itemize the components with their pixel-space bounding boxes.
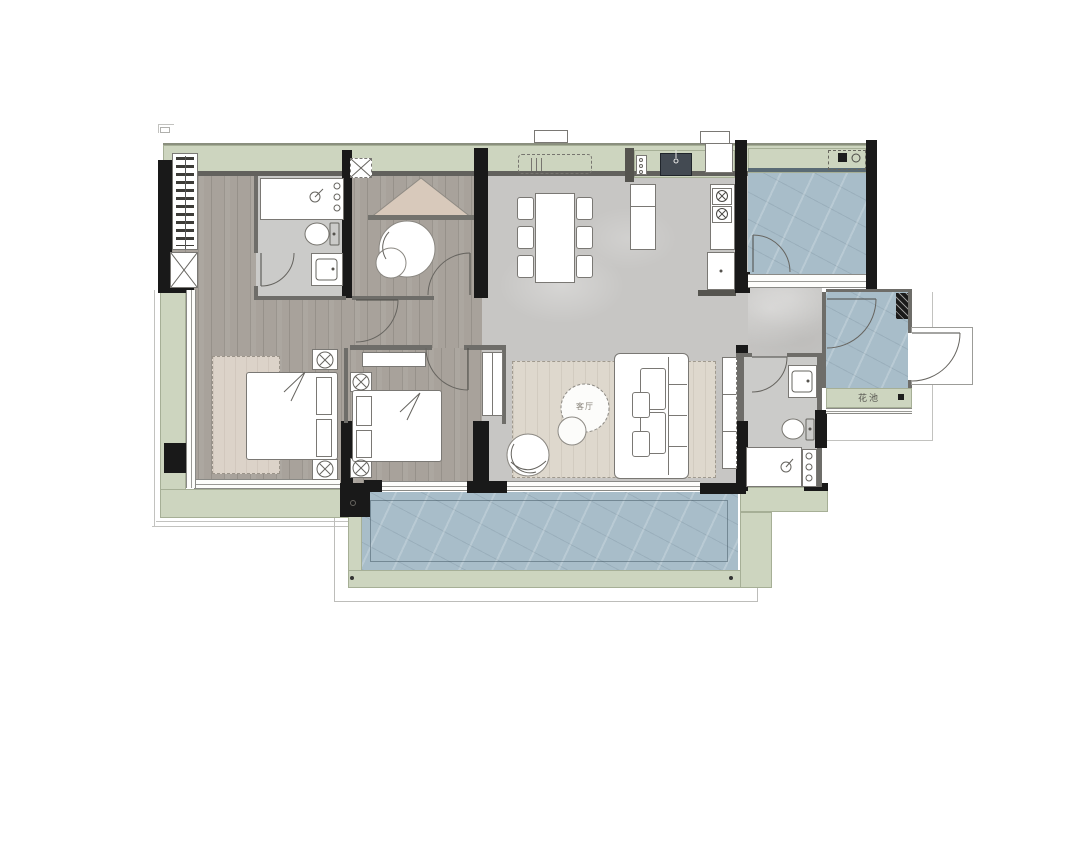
guest-bathroom-door [752,357,787,392]
plan-symbol-overlay [0,0,1080,866]
living-room-label: 客厅 [570,401,600,413]
stove-burner-icon [717,191,728,202]
play-tent [368,178,474,220]
master-hall-door [356,300,398,342]
table-lamp-icon [353,460,369,476]
shower-knobs [334,183,340,211]
table-lamp-icon [353,374,369,390]
round-chair [376,221,435,278]
shaft-x-icon [171,253,197,287]
study-door [428,253,470,295]
balcony-dot [351,501,356,506]
porch-interior-door [827,299,876,348]
master-bathroom-door [261,253,294,286]
table-lamp-icon [317,461,333,477]
stove-burner-icon [717,209,728,220]
flower-bed-dot [898,394,904,400]
balcony-dot [729,576,733,580]
duvet-fold [400,393,420,420]
bedroom2-door [426,348,468,390]
shower-head-icon [310,189,323,202]
appliance-dots [640,159,643,174]
toilet [782,419,814,440]
washing-machine-icon [838,153,860,162]
sink-basin [316,259,337,280]
service-balcony-door [753,235,790,272]
sink-basin [792,371,812,392]
shower-knobs [806,453,812,481]
kitchen-faucet-icon [674,150,678,163]
shaft-x-icon [351,159,371,177]
armchair [507,434,549,476]
duvet-fold [284,372,305,401]
toilet [305,223,339,245]
floor-plan: 花池 [0,0,1080,866]
table-lamp-icon [317,352,333,368]
balcony-dot [350,576,354,580]
fridge-dot [720,270,723,273]
shower-head-icon [781,459,793,472]
front-door [912,333,960,381]
coffee-table [558,384,609,445]
